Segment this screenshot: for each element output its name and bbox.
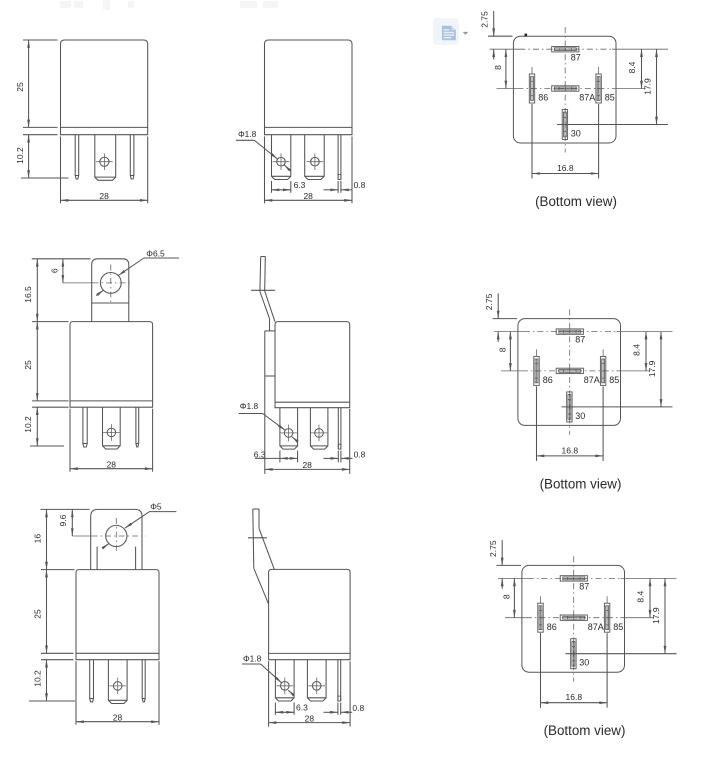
svg-text:87: 87 [575,335,585,345]
svg-text:(Bottom view): (Bottom view) [535,194,617,209]
svg-text:8: 8 [501,594,511,599]
svg-text:2.75: 2.75 [488,540,498,557]
svg-text:25: 25 [15,82,25,92]
svg-text:16: 16 [33,534,43,544]
svg-text:2.75: 2.75 [484,293,494,310]
svg-text:6: 6 [49,268,59,273]
svg-text:30: 30 [579,658,589,668]
svg-text:87: 87 [571,52,581,62]
svg-text:87: 87 [579,582,589,592]
svg-text:0.8: 0.8 [354,449,366,459]
svg-text:8: 8 [497,347,507,352]
svg-text:25: 25 [23,360,33,370]
svg-text:8.4: 8.4 [631,344,641,356]
svg-text:10.2: 10.2 [23,416,33,433]
svg-text:Φ1.8: Φ1.8 [243,653,262,663]
svg-text:16.5: 16.5 [23,286,33,303]
svg-text:28: 28 [99,191,109,201]
svg-text:17.9: 17.9 [643,78,653,95]
svg-text:85: 85 [609,375,619,385]
svg-text:28: 28 [107,459,117,469]
svg-text:85: 85 [613,622,623,632]
svg-text:6.3: 6.3 [254,449,266,459]
svg-text:2.75: 2.75 [480,11,490,28]
svg-text:25: 25 [33,609,43,619]
svg-text:30: 30 [575,411,585,421]
svg-text:9.6: 9.6 [58,514,68,526]
svg-text:87A: 87A [579,93,595,103]
svg-text:0.8: 0.8 [354,180,366,190]
svg-text:16.8: 16.8 [566,692,583,702]
svg-text:30: 30 [571,129,581,139]
svg-text:28: 28 [305,713,315,723]
svg-text:6.3: 6.3 [296,703,308,713]
svg-text:86: 86 [538,93,548,103]
svg-text:28: 28 [302,460,312,470]
svg-text:0.8: 0.8 [352,703,364,713]
svg-text:17.9: 17.9 [651,607,661,624]
svg-text:10.2: 10.2 [33,670,43,687]
svg-text:86: 86 [547,622,557,632]
svg-text:10.2: 10.2 [15,147,25,164]
svg-text:Φ1.8: Φ1.8 [238,129,257,139]
svg-text:87A: 87A [588,622,604,632]
svg-text:87A: 87A [584,375,600,385]
svg-text:6.3: 6.3 [294,180,306,190]
svg-text:16.8: 16.8 [562,445,579,455]
svg-text:8.4: 8.4 [635,591,645,603]
svg-text:(Bottom view): (Bottom view) [540,476,622,491]
svg-text:(Bottom view): (Bottom view) [544,723,626,738]
svg-text:28: 28 [113,712,123,722]
svg-text:86: 86 [543,375,553,385]
svg-text:Φ1.8: Φ1.8 [240,401,259,411]
svg-text:Φ5: Φ5 [150,501,162,511]
svg-text:8.4: 8.4 [627,61,637,73]
svg-text:8: 8 [493,65,503,70]
svg-text:17.9: 17.9 [647,360,657,377]
svg-text:28: 28 [303,191,313,201]
svg-text:85: 85 [605,93,615,103]
svg-text:Φ6.5: Φ6.5 [146,249,165,259]
svg-text:16.8: 16.8 [557,163,574,173]
